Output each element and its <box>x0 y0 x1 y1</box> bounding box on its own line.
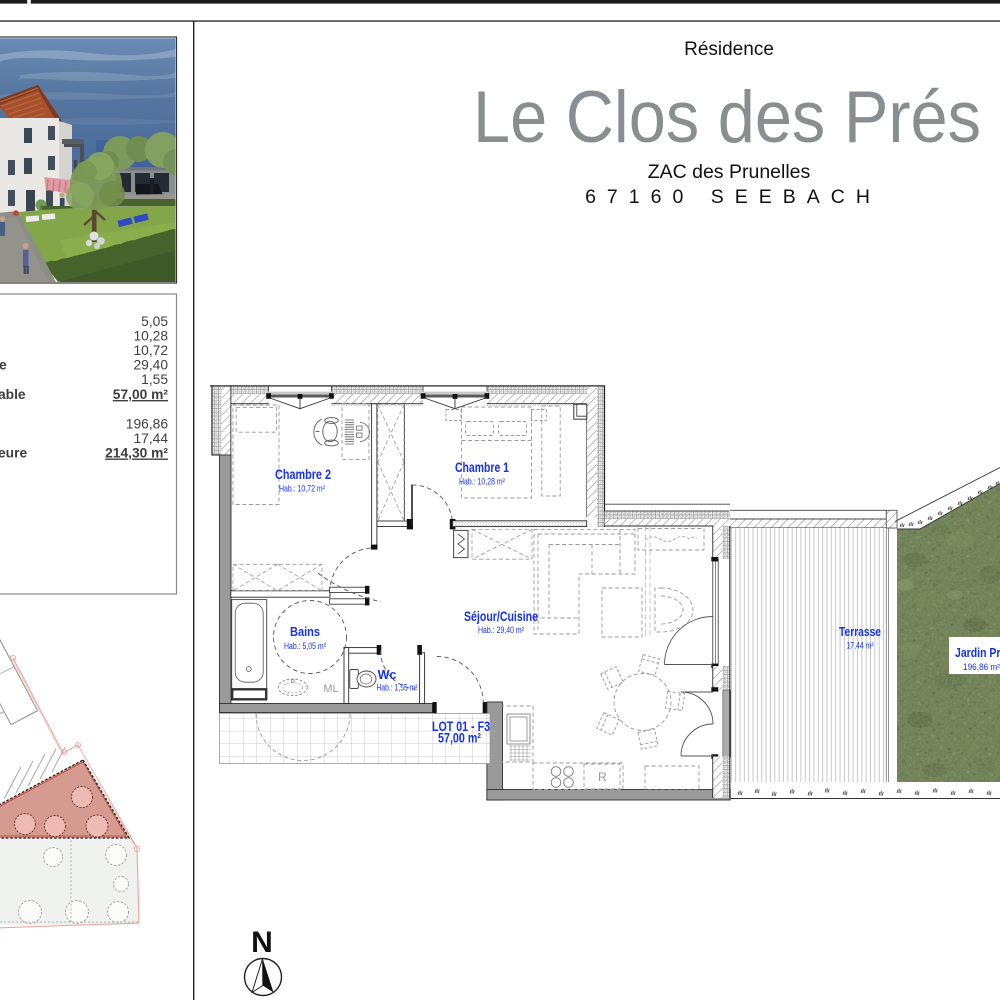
svg-text:ML: ML <box>323 683 338 695</box>
svg-text:Wc: Wc <box>378 668 397 682</box>
svg-text:N: N <box>251 926 273 959</box>
svg-text:29,40: 29,40 <box>133 358 168 373</box>
svg-text:Terrasse: Terrasse <box>839 624 881 639</box>
svg-text:Hab.: 5,05 m²: Hab.: 5,05 m² <box>284 641 326 651</box>
svg-text:ZAC des Prunelles: ZAC des Prunelles <box>648 161 811 183</box>
svg-text:Bains: Bains <box>290 624 320 639</box>
svg-text:196,86: 196,86 <box>126 417 169 432</box>
svg-text:Hab.: 1,55 m²: Hab.: 1,55 m² <box>377 683 418 693</box>
svg-text:57,00 m²: 57,00 m² <box>438 731 481 746</box>
svg-text:Hab.: 29,40 m²: Hab.: 29,40 m² <box>478 625 524 635</box>
svg-text:10,28: 10,28 <box>133 329 168 344</box>
svg-text:Chambre 2: Chambre 2 <box>275 467 331 482</box>
svg-text:Le Clos des Prés: Le Clos des Prés <box>473 77 981 158</box>
svg-text:e: e <box>0 358 7 373</box>
svg-text:214,30 m²: 214,30 m² <box>105 446 168 461</box>
svg-text:196,86 m²: 196,86 m² <box>963 662 1000 672</box>
svg-text:Hab.: 10,72 m²: Hab.: 10,72 m² <box>279 484 325 494</box>
svg-text:1,55: 1,55 <box>141 372 168 387</box>
svg-text:17,44: 17,44 <box>133 431 168 446</box>
svg-text:Séjour/Cuisine: Séjour/Cuisine <box>464 609 538 624</box>
svg-text:5,05: 5,05 <box>141 314 168 329</box>
svg-text:67160 SEEBACH: 67160 SEEBACH <box>585 186 881 208</box>
svg-text:R: R <box>598 770 607 784</box>
svg-text:able: able <box>0 387 26 402</box>
svg-text:Jardin Privatif: Jardin Privatif <box>955 645 1000 660</box>
svg-text:10,72: 10,72 <box>133 343 168 358</box>
svg-text:Hab.: 10,28 m²: Hab.: 10,28 m² <box>459 477 505 487</box>
svg-text:57,00 m²: 57,00 m² <box>113 387 169 402</box>
svg-text:Chambre 1: Chambre 1 <box>455 460 509 475</box>
svg-text:17,44 m²: 17,44 m² <box>847 641 874 651</box>
svg-text:eure: eure <box>0 446 27 461</box>
svg-text:Résidence: Résidence <box>684 39 774 60</box>
